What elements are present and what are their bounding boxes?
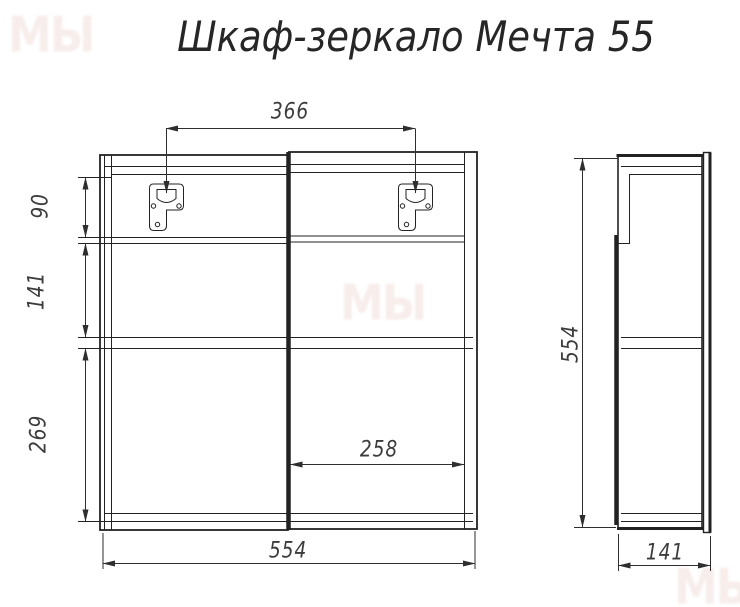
dim-middle-section-height: 141 bbox=[25, 272, 50, 310]
dim-hanger-spacing: 366 bbox=[271, 100, 309, 125]
side-view bbox=[616, 153, 711, 533]
dim-overall-height: 554 bbox=[559, 325, 584, 363]
dim-lower-section-height: 269 bbox=[27, 415, 52, 453]
dim-upper-section-height: 90 bbox=[29, 193, 54, 219]
front-left-door bbox=[100, 155, 288, 530]
technical-drawing bbox=[0, 0, 740, 607]
drawing-page: МЫ МЫ МЫ Шкаф-зеркало Мечта 55 bbox=[0, 0, 740, 607]
dim-overall-depth: 141 bbox=[646, 541, 684, 566]
dim-overall-width: 554 bbox=[269, 539, 307, 564]
front-view bbox=[78, 152, 477, 530]
side-carcass bbox=[618, 155, 702, 529]
dim-right-door-width: 258 bbox=[360, 438, 398, 463]
front-right-door bbox=[289, 152, 477, 529]
